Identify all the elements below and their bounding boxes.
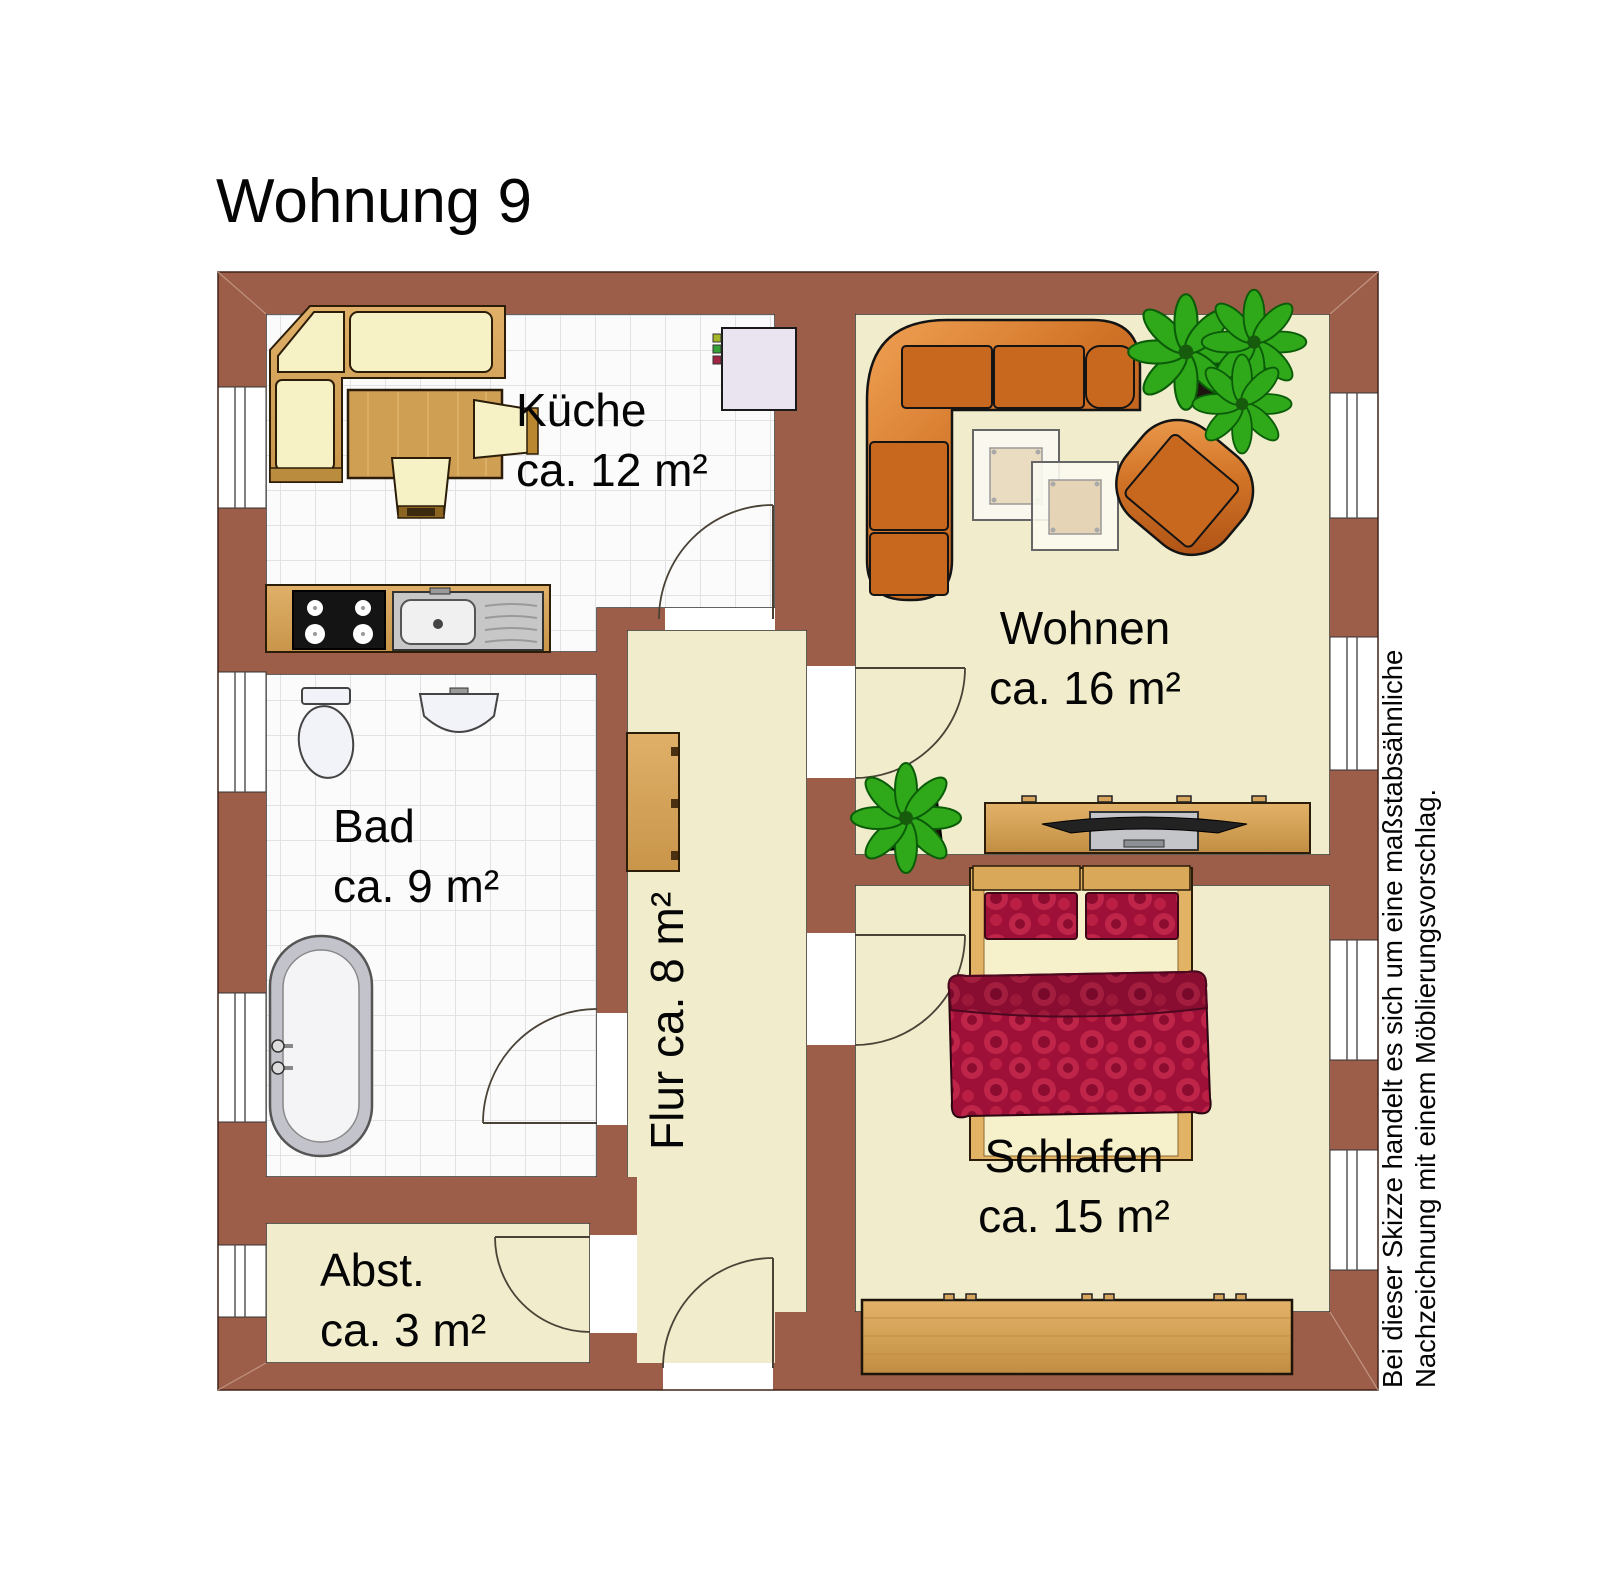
bench-seat-left xyxy=(276,380,334,470)
disclaimer-line-1: Bei dieser Skizze handelt es sich um ein… xyxy=(1376,608,1409,1388)
window-left-2 xyxy=(218,672,266,792)
window-right-4 xyxy=(1330,1150,1378,1270)
scale-disclaimer: Bei dieser Skizze handelt es sich um ein… xyxy=(1376,608,1448,1388)
floorplan-drawing xyxy=(0,0,1602,1577)
plant-flur-door-icon xyxy=(851,763,961,873)
blanket-fold xyxy=(949,971,1207,1016)
room-area: ca. 9 m² xyxy=(333,856,499,916)
window-left-4 xyxy=(218,1245,266,1317)
pillow-right xyxy=(1086,893,1178,939)
window-right-3 xyxy=(1330,940,1378,1060)
wardrobe xyxy=(862,1294,1292,1374)
floorplan-page: Wohnung 9 xyxy=(0,0,1602,1577)
wall-kueche-bad xyxy=(266,652,597,674)
wall-abstellraum-flur-lower xyxy=(590,1333,637,1363)
wall-kueche-flur-right xyxy=(775,608,807,630)
room-label-wohnen: Wohnen ca. 16 m² xyxy=(925,598,1245,718)
bench-seat-top xyxy=(350,312,492,372)
room-name: Abst. xyxy=(320,1240,486,1300)
room-label-flur: Flur ca. 8 m² xyxy=(638,910,758,1150)
disclaimer-line-2: Nachzeichnung mit einem Möblierungsvorsc… xyxy=(1409,608,1442,1388)
window-left-3 xyxy=(218,993,266,1122)
sink xyxy=(393,588,543,650)
room-name: Küche xyxy=(516,380,708,440)
room-area: ca. 16 m² xyxy=(925,658,1245,718)
room-area: ca. 15 m² xyxy=(914,1186,1234,1246)
room-label-bad: Bad ca. 9 m² xyxy=(333,796,499,916)
room-label-schlafen: Schlafen ca. 15 m² xyxy=(914,1126,1234,1246)
fridge xyxy=(713,328,796,410)
stove xyxy=(293,591,385,649)
room-area: ca. 3 m² xyxy=(320,1300,486,1360)
room-name: Flur xyxy=(641,1071,693,1150)
dining-chair-bottom xyxy=(392,458,450,518)
bench-endcap xyxy=(270,468,342,482)
wall-bad-abstellraum xyxy=(266,1177,637,1223)
window-left-1 xyxy=(218,387,266,508)
room-name: Bad xyxy=(333,796,499,856)
room-label-kueche: Küche ca. 12 m² xyxy=(516,380,708,500)
headboard-right xyxy=(1083,866,1190,890)
pillow-left xyxy=(985,893,1077,939)
wall-bad-flur-lower xyxy=(597,1125,627,1177)
room-area: ca. 12 m² xyxy=(516,440,708,500)
double-bed xyxy=(949,866,1211,1160)
window-right-2 xyxy=(1330,637,1378,770)
wall-abstellraum-flur-upper xyxy=(590,1223,637,1235)
headboard-left xyxy=(973,866,1080,890)
room-area: ca. 8 m² xyxy=(641,892,693,1058)
wall-bad-flur-upper xyxy=(597,608,627,1013)
room-label-abstellraum: Abst. ca. 3 m² xyxy=(320,1240,486,1360)
bathtub xyxy=(270,936,372,1156)
room-name: Wohnen xyxy=(925,598,1245,658)
room-name: Schlafen xyxy=(914,1126,1234,1186)
hallway-cabinet xyxy=(627,733,679,871)
window-right-1 xyxy=(1330,393,1378,518)
